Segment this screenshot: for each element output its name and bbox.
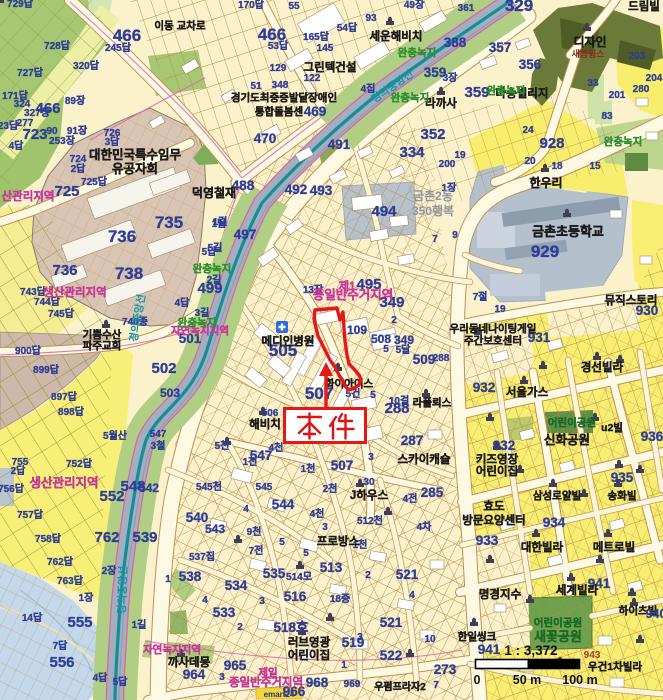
svg-text:유공자회: 유공자회 — [112, 161, 158, 176]
svg-text:4: 4 — [243, 504, 249, 515]
svg-text:메디인병원: 메디인병원 — [262, 334, 315, 348]
svg-text:4답: 4답 — [175, 297, 191, 309]
svg-text:효도: 효도 — [483, 499, 505, 513]
svg-text:506: 506 — [262, 408, 279, 419]
svg-text:547: 547 — [150, 429, 167, 440]
svg-text:14답: 14답 — [22, 612, 43, 624]
svg-text:941: 941 — [478, 642, 501, 657]
svg-text:2: 2 — [365, 570, 371, 581]
svg-text:544: 544 — [272, 497, 295, 512]
svg-text:539: 539 — [132, 529, 157, 546]
svg-text:어린이집: 어린이집 — [288, 648, 330, 662]
svg-text:932: 932 — [473, 380, 496, 395]
svg-text:969: 969 — [344, 679, 361, 690]
svg-text:어린이집: 어린이집 — [476, 464, 518, 478]
svg-text:350행복: 350행복 — [412, 203, 454, 218]
svg-text:965: 965 — [224, 658, 247, 673]
svg-text:제일: 제일 — [258, 666, 277, 679]
svg-text:우펌프라자2: 우펌프라자2 — [374, 680, 426, 693]
svg-text:514모: 514모 — [286, 571, 312, 583]
svg-text:통합돌봄센: 통합돌봄센 — [255, 105, 304, 118]
svg-text:516: 516 — [284, 589, 307, 604]
svg-text:521: 521 — [396, 567, 419, 582]
svg-text:55: 55 — [288, 1, 300, 12]
svg-text:2: 2 — [391, 315, 397, 326]
svg-text:100 m: 100 m — [562, 673, 597, 687]
svg-text:933: 933 — [476, 533, 499, 548]
svg-text:23답: 23답 — [0, 120, 19, 132]
svg-text:507: 507 — [331, 458, 354, 473]
svg-text:라플뢰스: 라플뢰스 — [413, 396, 452, 409]
svg-text:725: 725 — [54, 183, 79, 200]
svg-text:파주교회: 파주교회 — [83, 339, 122, 352]
svg-text:세운해비치: 세운해비치 — [370, 29, 423, 43]
svg-text:534: 534 — [225, 578, 248, 593]
svg-text:7: 7 — [432, 234, 438, 245]
svg-text:1천: 1천 — [243, 455, 258, 468]
svg-text:3: 3 — [322, 522, 328, 533]
svg-text:109: 109 — [347, 323, 367, 337]
svg-text:한일씽크: 한일씽크 — [458, 630, 497, 643]
svg-text:4: 4 — [202, 595, 208, 606]
svg-text:288: 288 — [433, 353, 450, 364]
svg-text:33: 33 — [587, 78, 599, 89]
svg-text:968: 968 — [306, 675, 329, 690]
svg-text:7: 7 — [433, 680, 439, 691]
svg-text:253장: 253장 — [49, 134, 76, 147]
svg-text:송화빌: 송화빌 — [608, 489, 637, 502]
svg-text:1장: 1장 — [79, 591, 95, 604]
svg-text:735: 735 — [155, 213, 183, 232]
svg-text:277: 277 — [17, 118, 34, 129]
svg-text:1: 1 — [165, 574, 171, 585]
svg-text:4답: 4답 — [9, 140, 25, 152]
svg-text:736: 736 — [52, 262, 77, 279]
svg-text:503: 503 — [160, 386, 180, 400]
svg-text:728답: 728답 — [44, 40, 71, 52]
svg-text:완충녹지: 완충녹지 — [604, 135, 643, 148]
svg-text:5: 5 — [383, 344, 389, 355]
svg-text:키즈영장: 키즈영장 — [476, 452, 519, 466]
svg-text:뮤직스토리: 뮤직스토리 — [605, 293, 658, 307]
svg-text:361: 361 — [458, 3, 475, 14]
svg-text:5답: 5답 — [113, 676, 129, 688]
svg-text:20: 20 — [524, 156, 536, 167]
svg-text:5월산: 5월산 — [103, 429, 128, 442]
svg-text:주간보호센터: 주간보호센터 — [464, 334, 522, 347]
svg-text:556: 556 — [49, 654, 74, 671]
svg-text:203: 203 — [629, 51, 646, 62]
svg-text:936: 936 — [641, 429, 663, 444]
svg-text:348: 348 — [272, 80, 289, 91]
svg-text:513: 513 — [320, 560, 343, 575]
svg-text:899답: 899답 — [33, 364, 60, 376]
svg-text:201: 201 — [609, 90, 626, 101]
svg-text:518호: 518호 — [274, 620, 310, 635]
svg-text:어린이공원: 어린이공원 — [548, 416, 596, 429]
svg-text:산관리지역: 산관리지역 — [2, 189, 55, 203]
svg-text:5달: 5달 — [396, 344, 412, 356]
svg-text:9천: 9천 — [247, 525, 262, 538]
svg-text:2답: 2답 — [11, 465, 27, 477]
svg-text:완충녹지: 완충녹지 — [391, 91, 430, 104]
svg-text:1답: 1답 — [212, 218, 228, 230]
svg-text:4천: 4천 — [269, 441, 284, 454]
svg-text:334: 334 — [399, 144, 425, 161]
svg-text:170답: 170답 — [238, 0, 265, 11]
svg-text:1 : 3,372: 1 : 3,372 — [504, 643, 557, 658]
svg-text:18중: 18중 — [330, 593, 350, 605]
svg-text:521: 521 — [380, 615, 403, 630]
svg-text:758답: 758답 — [35, 533, 62, 545]
svg-text:752답: 752답 — [66, 458, 93, 470]
svg-text:프로방스: 프로방스 — [317, 534, 360, 548]
svg-text:2장: 2장 — [102, 564, 118, 577]
svg-text:10걸: 10걸 — [389, 394, 409, 407]
svg-text:357: 357 — [489, 40, 512, 55]
svg-text:356: 356 — [519, 57, 542, 72]
svg-text:49장: 49장 — [404, 0, 425, 11]
svg-text:352: 352 — [420, 126, 445, 143]
svg-text:대한민국특수임무: 대한민국특수임무 — [89, 147, 182, 162]
svg-text:3: 3 — [219, 672, 225, 683]
svg-text:762답: 762답 — [47, 556, 74, 568]
svg-text:50 m: 50 m — [513, 673, 542, 687]
svg-text:1: 1 — [341, 660, 347, 671]
svg-text:제1: 제1 — [339, 279, 357, 293]
svg-text:493: 493 — [310, 183, 333, 198]
svg-text:5답: 5답 — [202, 246, 218, 258]
svg-text:4전: 4전 — [403, 492, 418, 505]
svg-text:545: 545 — [256, 482, 273, 493]
svg-text:4차: 4차 — [417, 520, 433, 533]
svg-text:756답: 756답 — [0, 483, 25, 495]
svg-text:경의중앙선: 경의중앙선 — [115, 566, 130, 615]
svg-text:122: 122 — [304, 73, 321, 84]
svg-text:그린텍건설: 그린텍건설 — [304, 60, 357, 74]
svg-text:900답: 900답 — [15, 345, 42, 357]
svg-text:757답: 757답 — [17, 509, 44, 521]
svg-text:2답: 2답 — [71, 163, 87, 175]
svg-text:929: 929 — [531, 242, 559, 261]
svg-text:15: 15 — [589, 161, 601, 172]
svg-text:경기도최중증발달장애인: 경기도최중증발달장애인 — [231, 91, 337, 104]
svg-text:280: 280 — [633, 84, 650, 95]
svg-text:금촌초등학교: 금촌초등학교 — [532, 224, 604, 239]
svg-text:7절: 7절 — [473, 290, 488, 303]
svg-text:19: 19 — [494, 304, 506, 315]
svg-text:완충녹지: 완충녹지 — [487, 84, 526, 97]
svg-text:940: 940 — [646, 607, 663, 621]
svg-text:18: 18 — [551, 161, 563, 172]
svg-text:9: 9 — [452, 230, 458, 241]
svg-text:898답: 898답 — [58, 406, 85, 418]
svg-text:762: 762 — [94, 529, 119, 546]
svg-text:3철: 3철 — [151, 439, 166, 452]
svg-text:54답: 54답 — [337, 22, 358, 34]
svg-text:우리동네나이팅게일: 우리동네나이팅게일 — [450, 322, 537, 335]
svg-text:763답: 763답 — [57, 575, 84, 587]
svg-text:200: 200 — [439, 159, 456, 170]
svg-text:24: 24 — [522, 125, 534, 136]
svg-text:5: 5 — [303, 548, 309, 559]
svg-text:까사데몽: 까사데몽 — [168, 655, 211, 669]
svg-text:897답: 897답 — [51, 391, 78, 403]
svg-text:경선빌라: 경선빌라 — [581, 360, 624, 374]
svg-text:2: 2 — [237, 622, 243, 633]
svg-text:러브영광: 러브영광 — [288, 635, 331, 649]
svg-text:7전: 7전 — [249, 544, 264, 557]
svg-text:287: 287 — [401, 433, 424, 448]
svg-text:545천: 545천 — [196, 480, 222, 493]
svg-text:5: 5 — [370, 390, 376, 401]
svg-text:165답: 165답 — [303, 31, 330, 43]
svg-text:53답: 53답 — [268, 40, 289, 52]
svg-text:736: 736 — [108, 227, 136, 246]
svg-text:자연녹지지역: 자연녹지지역 — [143, 643, 201, 656]
svg-text:129: 129 — [270, 63, 287, 74]
svg-text:3장: 3장 — [443, 71, 459, 84]
svg-text:538: 538 — [179, 569, 202, 584]
svg-text:935: 935 — [611, 470, 634, 485]
svg-text:934: 934 — [543, 515, 566, 530]
svg-text:543: 543 — [205, 522, 225, 536]
svg-text:4답: 4답 — [93, 672, 109, 684]
svg-text:5: 5 — [279, 537, 285, 548]
svg-text:204: 204 — [646, 73, 663, 84]
svg-text:생산관리지역: 생산관리지역 — [29, 475, 98, 490]
svg-text:555: 555 — [67, 614, 92, 631]
svg-text:한우리: 한우리 — [529, 175, 562, 190]
svg-text:드림빌: 드림빌 — [628, 0, 660, 13]
svg-text:470: 470 — [254, 131, 277, 146]
svg-text:1길: 1길 — [132, 618, 147, 631]
svg-text:3: 3 — [259, 596, 265, 607]
svg-text:새꽃공원: 새꽃공원 — [534, 629, 582, 644]
svg-text:0: 0 — [474, 673, 481, 687]
svg-text:320답: 320답 — [73, 60, 100, 72]
svg-text:738: 738 — [115, 264, 143, 283]
svg-text:502: 502 — [151, 360, 176, 377]
svg-text:245답: 245답 — [105, 42, 132, 54]
svg-text:금촌2동: 금촌2동 — [413, 188, 453, 203]
svg-text:세계빌라: 세계빌라 — [556, 583, 599, 597]
svg-text:디자인: 디자인 — [573, 34, 606, 49]
svg-text:완충녹지: 완충녹지 — [178, 316, 217, 329]
svg-text:대한빌라: 대한빌라 — [521, 540, 564, 554]
svg-text:494: 494 — [371, 203, 397, 220]
svg-text:745답: 745답 — [48, 308, 75, 320]
svg-text:83: 83 — [601, 111, 613, 122]
svg-text:5천: 5천 — [215, 439, 230, 452]
svg-text:943: 943 — [584, 650, 601, 661]
svg-text:3답: 3답 — [105, 136, 121, 148]
svg-text:273: 273 — [434, 662, 457, 677]
svg-text:메트로빌: 메트로빌 — [593, 540, 635, 554]
svg-text:4천: 4천 — [310, 507, 325, 520]
svg-text:497: 497 — [234, 227, 257, 242]
svg-text:30: 30 — [363, 477, 375, 488]
svg-text:725답: 725답 — [81, 176, 108, 188]
svg-text:552: 552 — [99, 488, 124, 505]
svg-text:이동 교차로: 이동 교차로 — [154, 19, 206, 32]
svg-text:537집: 537집 — [189, 551, 215, 563]
svg-text:방문요양센터: 방문요양센터 — [462, 513, 525, 527]
svg-text:512천: 512천 — [357, 514, 383, 527]
svg-text:469: 469 — [304, 104, 327, 119]
svg-text:u2빌: u2빌 — [601, 421, 623, 434]
svg-text:어린이공원: 어린이공원 — [534, 616, 582, 629]
svg-text:우건1차빌라: 우건1차빌라 — [588, 660, 642, 673]
svg-text:285: 285 — [421, 485, 444, 500]
svg-text:388: 388 — [444, 35, 467, 50]
svg-text:729답: 729답 — [7, 0, 34, 10]
svg-text:491: 491 — [328, 137, 351, 152]
svg-text:생산관리지역: 생산관리지역 — [43, 285, 106, 299]
svg-text:라까사: 라까사 — [425, 96, 457, 110]
svg-text:542: 542 — [139, 481, 159, 495]
svg-text:89장: 89장 — [65, 94, 86, 107]
svg-text:명경지수: 명경지수 — [479, 587, 522, 601]
svg-text:19: 19 — [454, 150, 466, 161]
svg-text:93: 93 — [365, 13, 377, 24]
svg-text:J하우스: J하우스 — [350, 488, 389, 502]
svg-text:2천: 2천 — [323, 482, 338, 495]
svg-text:완충녹지: 완충녹지 — [398, 46, 437, 59]
svg-text:스카이캐슬: 스카이캐슬 — [398, 452, 451, 466]
svg-text:3: 3 — [357, 632, 363, 643]
svg-text:신화공원: 신화공원 — [544, 432, 590, 447]
svg-text:492: 492 — [285, 182, 308, 197]
svg-text:932: 932 — [493, 438, 516, 453]
svg-text:928: 928 — [539, 135, 564, 152]
svg-text:해비치: 해비치 — [249, 417, 281, 431]
svg-text:새봄윙스: 새봄윙스 — [571, 48, 605, 59]
svg-text:727답: 727답 — [17, 67, 44, 79]
svg-text:1천: 1천 — [301, 462, 316, 475]
svg-text:10: 10 — [424, 634, 436, 645]
svg-text:서울가스: 서울가스 — [506, 385, 549, 399]
svg-text:145: 145 — [317, 43, 334, 54]
svg-text:3: 3 — [368, 452, 374, 463]
svg-text:522: 522 — [380, 648, 403, 663]
svg-text:7답: 7답 — [53, 640, 69, 652]
svg-text:535: 535 — [263, 566, 286, 581]
svg-text:삼성로얄빌: 삼성로얄빌 — [533, 489, 581, 502]
svg-text:964: 964 — [183, 667, 206, 682]
svg-text:덕영철재: 덕영철재 — [192, 185, 236, 200]
svg-text:533: 533 — [213, 605, 236, 620]
svg-text:4: 4 — [409, 590, 415, 601]
svg-text:51: 51 — [250, 81, 262, 92]
svg-text:329: 329 — [505, 0, 533, 15]
svg-text:완충녹지: 완충녹지 — [193, 262, 232, 275]
